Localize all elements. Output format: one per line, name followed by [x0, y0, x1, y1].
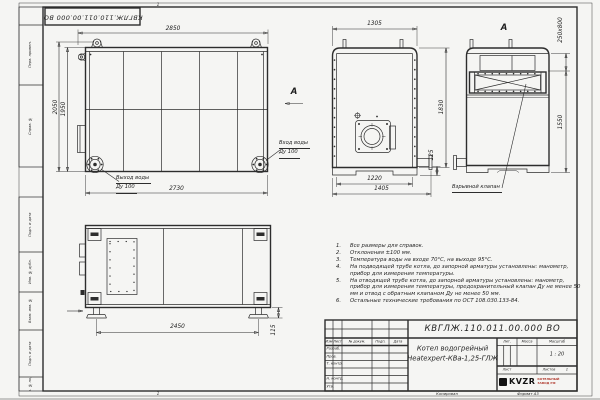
tb-sheets-label: Листов — [543, 368, 556, 371]
company-logo: KVZR КОТЕЛЬНЫЙ ЗАВОД РФ — [499, 375, 575, 389]
logo-subtitle: КОТЕЛЬНЫЙ ЗАВОД РФ — [537, 378, 559, 385]
tb-row-nkontr: Н. контр. — [327, 377, 344, 381]
dim-plan-feet-span: 2450 — [170, 325, 185, 331]
margin-field-inv-dubl: Инв. № дубл. — [19, 252, 43, 292]
note-4: 4.На подводящей трубе котла, до запорной… — [336, 264, 583, 277]
tb-col-list: Лист — [333, 340, 342, 343]
outlet-water-dn: Ду 100 — [116, 184, 137, 193]
logo-kvzr-text: KVZR — [509, 378, 535, 386]
outlet-water-name: Выход воды — [116, 175, 151, 184]
dim-plan-foot-height: 115 — [272, 324, 278, 335]
zone-number-bottom: 1 — [157, 392, 160, 396]
front-view-linework — [333, 26, 450, 197]
note-2: 2.Отклонения ±100 мм. — [336, 250, 583, 256]
doc-number-stamp: КВГЛЖ.110.011.00.000 ВО — [43, 13, 142, 20]
drawing-sheet: КВГЛЖ.110.011.00.000 ВО 1 1 Перв. примен… — [0, 0, 600, 400]
dim-front-pipe-offset: 125 — [430, 149, 436, 160]
dim-front-width-top: 1305 — [367, 22, 382, 28]
title-doc-number: КВГЛЖ.110.011.00.000 ВО — [424, 325, 560, 334]
zone-number-top: 1 — [157, 3, 160, 7]
logo-square-icon — [499, 378, 507, 386]
dim-valve-size: 250x800 — [559, 17, 565, 43]
inlet-water-dn: Ду 100 — [279, 149, 300, 158]
rear-view-label: А — [501, 24, 508, 33]
dim-side-width-bottom: 2730 — [169, 187, 184, 193]
dim-side-height-inner: 1950 — [62, 102, 68, 117]
tb-col-doc: № докум. — [349, 340, 366, 343]
margin-field-podp-data-2: Подп. и дата — [19, 330, 43, 377]
sheet-frame — [19, 3, 592, 396]
dim-rear-height: 1550 — [559, 115, 565, 130]
tb-row-utv: Утв. — [327, 385, 334, 389]
tb-row-prov: Пров. — [327, 355, 337, 359]
dim-side-width-top: 2850 — [166, 27, 181, 33]
tb-col-izm: Изм — [326, 340, 333, 343]
dim-side-height-outer: 2050 — [54, 100, 60, 115]
note-3: 3.Температура воды на входе 70°С, на вых… — [336, 257, 583, 263]
explosion-valve-text: Взрывной клапан — [452, 184, 502, 193]
footer-copied-label: Копировал — [436, 392, 458, 396]
product-name-line1: Котел водогрейный — [417, 346, 488, 353]
technical-notes: 1.Все размеры для справок. 2.Отклонения … — [336, 243, 583, 305]
product-name-line2: Heatexpert-КВа-1,25-ГЛЖ — [407, 356, 498, 363]
plan-view-linework — [67, 226, 283, 337]
tb-sheet-label: Лист — [503, 368, 512, 371]
dim-front-width-outer: 1405 — [374, 187, 389, 193]
margin-field-vzam-inv: Взам. инв. № — [19, 292, 43, 330]
tb-col-date: Дата — [394, 340, 403, 343]
tb-row-tkontr: Т. контр. — [327, 362, 343, 366]
tb-col-sign: Подп. — [375, 340, 385, 343]
logo-sub-line2: ЗАВОД РФ — [537, 382, 559, 386]
margin-field-perv-primen: Перв. примен. — [19, 25, 43, 85]
tb-mass-label: Масса — [522, 340, 533, 343]
footer-format-label: Формат А3 — [517, 392, 539, 396]
dim-front-width-inner: 1220 — [367, 177, 382, 183]
tb-scale-value: 1 : 20 — [550, 353, 564, 358]
inlet-water-name: Вход воды — [279, 140, 310, 149]
view-arrow-label: А — [291, 88, 298, 97]
dim-front-height: 1830 — [440, 100, 446, 115]
tb-scale-label: Масштаб — [549, 340, 565, 343]
side-view-linework — [56, 30, 303, 197]
margin-field-inv-podl: Инв. № подл. — [19, 377, 43, 391]
margin-field-podp-data-1: Подп. и дата — [19, 197, 43, 252]
outlet-water-label: Выход воды Ду 100 — [116, 175, 151, 194]
tb-row-razrab: Разраб. — [327, 347, 341, 351]
margin-field-sprav-no: Справ. № — [19, 85, 43, 167]
tb-lit-label: Лит. — [503, 340, 511, 343]
inlet-water-label: Вход воды Ду 100 — [279, 140, 310, 159]
note-5: 5.На отводящей трубе котла, до запорной … — [336, 278, 583, 297]
note-6: 6.Остальные технические требования по ОС… — [336, 298, 583, 304]
note-1: 1.Все размеры для справок. — [336, 243, 583, 249]
tb-sheets-value: 1 — [566, 368, 568, 371]
explosion-valve-callout: Взрывной клапан — [452, 184, 502, 193]
rear-view-linework — [454, 40, 571, 189]
